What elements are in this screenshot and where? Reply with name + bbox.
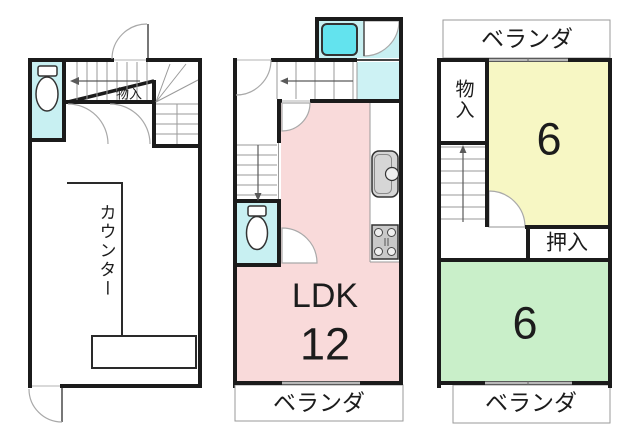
entrance-door-swing [112,24,147,59]
label-storage-3f: 物入 [454,79,473,121]
closet-door-swing [110,104,150,144]
kitchen-counter [370,103,399,262]
label-room-south-size: 6 [512,301,537,346]
label-counter-1f: カウンター [98,204,115,299]
washroom-2f [357,62,399,99]
kitchen-sink-icon [372,151,399,197]
back-door-swing [29,389,62,422]
label-veranda-2f: ベランダ [273,392,365,415]
stairs-3f [441,145,485,222]
toilet-icon [36,66,58,111]
ldk-room [237,267,281,385]
stairs-2f-up [277,62,353,99]
label-storage-1f: 物入 [116,88,142,101]
label-veranda-3f-south: ベランダ [485,392,577,415]
hall-door-swing [236,60,271,95]
label-ldk-size: 12 [300,322,350,367]
closet-door-swing [68,104,108,144]
stairs-2f-down [237,145,277,201]
label-ldk: LDK [292,279,358,313]
toilet-icon [247,206,268,250]
label-room-north-size: 6 [536,117,561,162]
gas-stove-icon [372,225,398,259]
ldk-room [370,262,399,385]
counter-1f [67,183,196,368]
label-closet-3f: 押入 [546,233,588,254]
bathtub-icon [322,24,357,55]
floorplan-image: 物入 カウンター LDK 12 ベランダ ベランダ 物入 6 押入 6 ベランダ [0,0,640,448]
label-veranda-3f-north: ベランダ [481,28,573,51]
